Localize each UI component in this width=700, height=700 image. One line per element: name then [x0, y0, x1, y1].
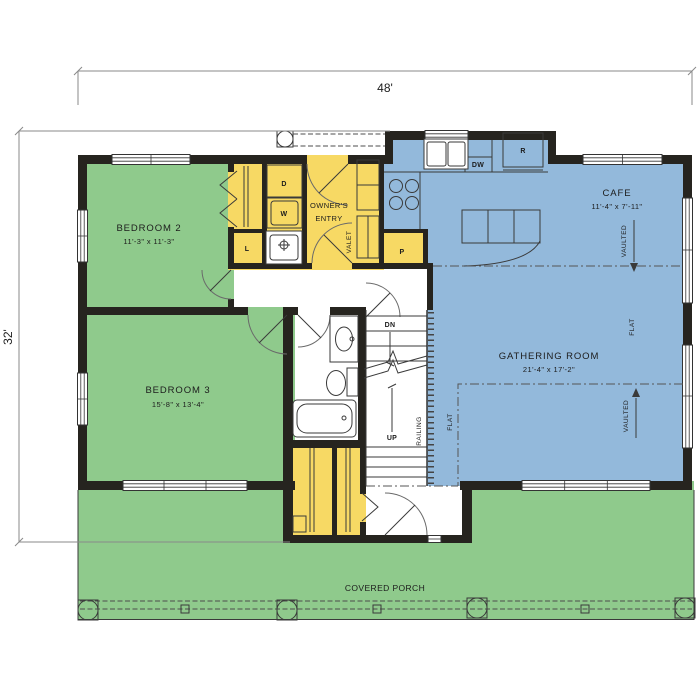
- cafe-size: 11'-4" x 7'-11": [591, 202, 642, 211]
- utility-sink: [266, 231, 302, 264]
- floor-plan-page: 48' 32' BEDROOM 2 11'-3" x 11'-3" BEDROO…: [0, 0, 700, 700]
- window-foyer-sidelite: [428, 536, 441, 543]
- depth-dimension-label: 32': [1, 329, 15, 345]
- bedroom3-size: 15'-8" x 13'-4": [152, 400, 204, 409]
- railing-label: RAILING: [416, 416, 423, 446]
- bedroom2-area: [78, 155, 234, 313]
- linen-label: L: [245, 246, 250, 253]
- bedroom3-label: BEDROOM 3: [145, 385, 210, 396]
- dishwasher-label: DW: [472, 162, 484, 169]
- gathering-room-size: 21'-4" x 17'-2": [523, 365, 575, 374]
- stairs-down-label: DN: [385, 322, 396, 329]
- entry-column-round: [277, 131, 293, 147]
- washer-label: W: [281, 211, 288, 218]
- bedroom2-size: 11'-3" x 11'-3": [123, 237, 174, 246]
- flat-label-left: FLAT: [447, 413, 454, 430]
- kitchen-sink: [424, 139, 468, 169]
- floor-plan-drawing: 48' 32' BEDROOM 2 11'-3" x 11'-3" BEDROO…: [0, 0, 700, 700]
- window-cafe-top: [583, 155, 662, 165]
- refrigerator-label: R: [520, 148, 525, 155]
- hall-closets-area: [283, 445, 366, 543]
- vaulted-label-cafe: VAULTED: [621, 225, 628, 258]
- window-bedroom3-left: [78, 373, 88, 425]
- toilet: [327, 368, 359, 396]
- bathtub: [293, 400, 356, 437]
- vanity-sink: [330, 316, 358, 362]
- gathering-area: [427, 268, 683, 486]
- bathroom-fixtures: [293, 316, 358, 437]
- covered-porch-label: COVERED PORCH: [345, 583, 425, 593]
- owners-entry-label-1: OWNER'S: [310, 201, 348, 210]
- window-bedroom3-bottom: [123, 481, 247, 491]
- window-bedroom2-left: [78, 210, 88, 262]
- flat-label-right: FLAT: [629, 318, 636, 335]
- foyer-area: [366, 486, 462, 535]
- entry-roof-overhang: [293, 134, 390, 146]
- valet-label: VALET: [346, 231, 353, 254]
- pantry-label: P: [400, 249, 405, 256]
- dryer-label: D: [281, 181, 286, 188]
- stairs-area: [366, 310, 427, 486]
- bedroom3-area: [78, 307, 295, 490]
- gathering-room-label: GATHERING ROOM: [499, 351, 600, 362]
- window-gathering-right: [683, 345, 693, 448]
- window-cafe-right: [683, 198, 693, 303]
- bathroom-door: [298, 315, 330, 347]
- cafe-label: CAFE: [603, 188, 632, 199]
- vaulted-label-gathering: VAULTED: [623, 400, 630, 433]
- stairs-up-label: UP: [387, 435, 397, 442]
- window-gathering-bottom: [522, 481, 650, 491]
- owners-entry-label-2: ENTRY: [315, 214, 342, 223]
- room-fills: [78, 140, 694, 620]
- kitchen-cafe-area: [384, 162, 683, 268]
- bedroom2-label: BEDROOM 2: [116, 223, 181, 234]
- window-bedroom2-top: [112, 155, 190, 165]
- width-dimension-label: 48': [377, 81, 393, 95]
- entry-porch-details: [277, 131, 390, 147]
- owners-entry-area: [302, 155, 384, 270]
